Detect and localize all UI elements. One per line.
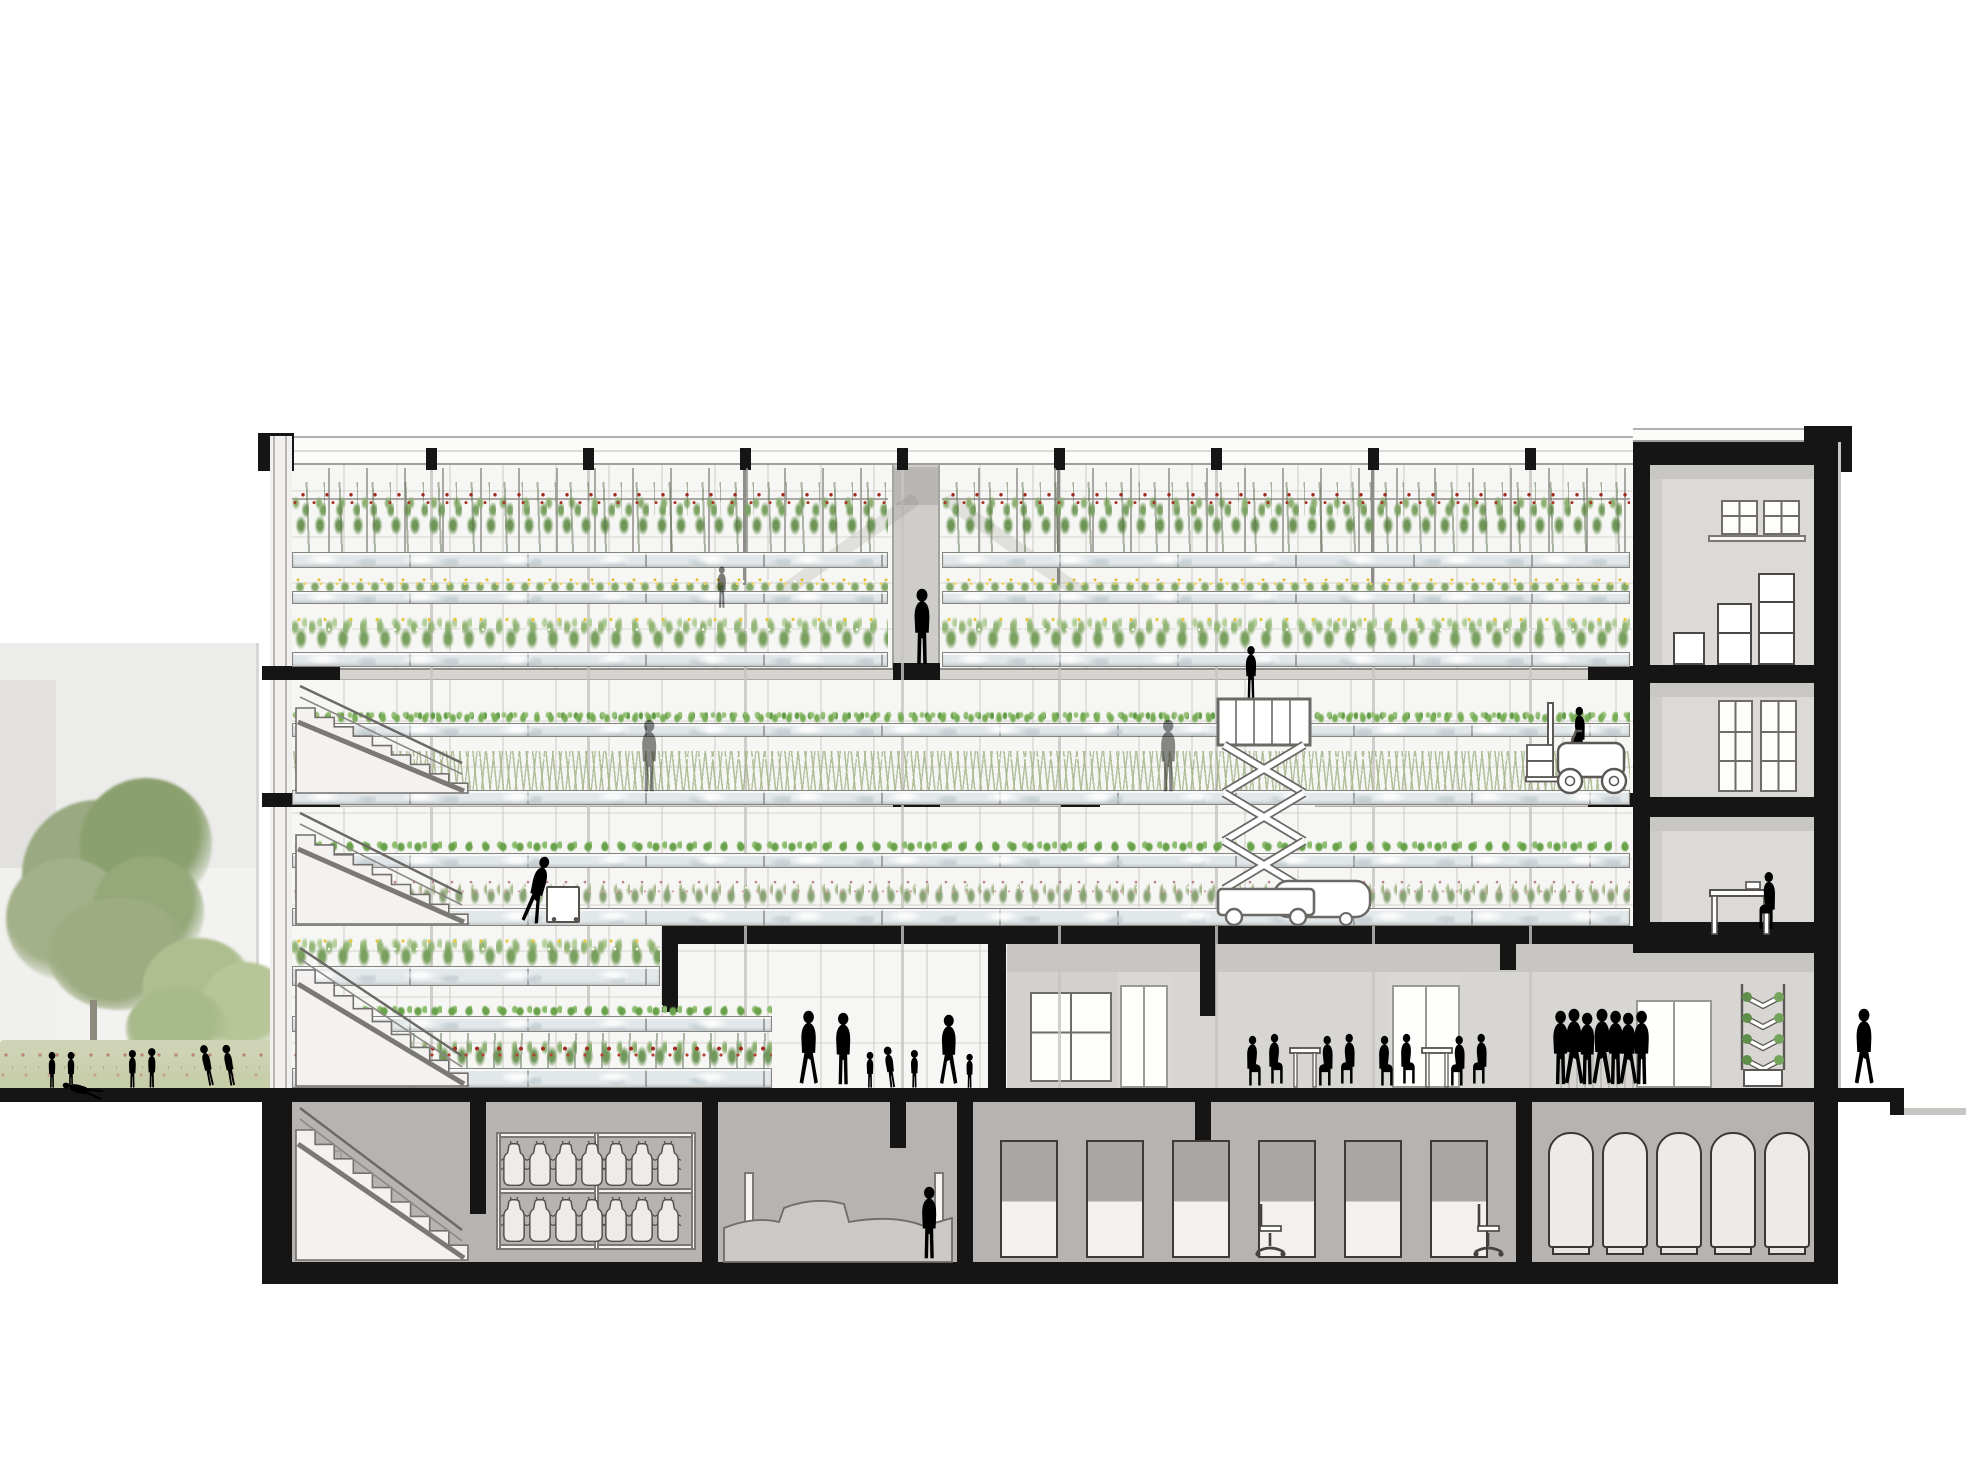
planter-box: [942, 552, 1630, 568]
tower-facade-line: [1838, 442, 1841, 1088]
cistern-foot: [1768, 1246, 1806, 1255]
roof-post: [740, 448, 751, 470]
wgrass-plant-row: [292, 751, 1630, 790]
storage-vessel: [656, 1196, 680, 1246]
storage-vessel: [580, 1140, 604, 1190]
storage-vessel: [580, 1196, 604, 1246]
ground-slab: [0, 1088, 1902, 1102]
office-chair: [1252, 1200, 1288, 1258]
person-silhouette-ps: [828, 1012, 858, 1088]
roof-post: [426, 448, 437, 470]
tower-cab-3: [1758, 573, 1795, 665]
locker-panel: [1000, 1140, 1058, 1258]
person-silhouette-ps: [1153, 719, 1183, 795]
planter-box: [292, 723, 1630, 737]
storage-vessel: [528, 1196, 552, 1246]
cistern-foot: [1606, 1246, 1644, 1255]
vertical-growing-rack: [1738, 982, 1788, 1088]
tower-win-b1: [1718, 700, 1753, 792]
tower-cab-2: [1717, 603, 1752, 665]
bsmt-div-4: [1516, 1102, 1532, 1262]
hall-window: [1030, 992, 1112, 1082]
person-silhouette-pc: [124, 1048, 141, 1090]
tomato-plant-row: [292, 482, 888, 552]
person-silhouette-pt: [1392, 1032, 1418, 1088]
person-silhouette-pw: [793, 1010, 824, 1088]
bsmt-wall-left: [262, 1088, 292, 1284]
tower-wall-right: [1814, 442, 1838, 1284]
lettuce-plant-row: [292, 837, 1630, 853]
architectural-section-drawing: Sectional drawing of an urban vertical-f…: [0, 0, 1966, 1475]
locker-panel: [1086, 1140, 1144, 1258]
roof-post: [1525, 448, 1536, 470]
ground-col-a: [662, 922, 678, 1012]
scissor-lift: [1178, 642, 1378, 932]
water-cistern: [1710, 1132, 1756, 1248]
person-silhouette-ps: [906, 588, 938, 668]
water-cistern: [1548, 1132, 1594, 1248]
office-chair: [1470, 1200, 1506, 1258]
tomato-plant-row: [942, 482, 1630, 552]
person-silhouette-ps: [914, 1186, 944, 1262]
staircase: [296, 944, 468, 1086]
person-silhouette-ps: [1626, 1010, 1657, 1088]
person-silhouette-pc: [862, 1050, 878, 1090]
staircase: [296, 682, 468, 793]
person-silhouette-pt: [1756, 870, 1785, 934]
micro-plant-row: [292, 707, 1630, 723]
cistern-foot: [1714, 1246, 1752, 1255]
storage-vessel: [554, 1140, 578, 1190]
water-cistern: [1764, 1132, 1810, 1248]
heather-plant-row: [292, 871, 1630, 908]
water-cistern: [1602, 1132, 1648, 1248]
person-silhouette-pt: [1470, 1032, 1496, 1088]
tower-slab-2: [1650, 797, 1814, 817]
roof-band: [258, 436, 1633, 465]
storage-vessel: [502, 1196, 526, 1246]
staircase: [296, 809, 468, 924]
planter-box: [292, 652, 888, 667]
person-silhouette-ps: [634, 719, 664, 795]
cistern-foot: [1660, 1246, 1698, 1255]
storage-vessel: [554, 1196, 578, 1246]
storage-vessel: [502, 1140, 526, 1190]
tower-sill: [1708, 535, 1806, 542]
storage-vessel: [604, 1196, 628, 1246]
tower-cab-1: [1673, 632, 1705, 665]
ytray-plant-row: [942, 575, 1630, 591]
planter-box: [942, 591, 1630, 604]
locker-panel: [1172, 1140, 1230, 1258]
person-silhouette-pc: [44, 1050, 60, 1090]
tankframe-v3: [691, 1132, 696, 1250]
person-silhouette-pw: [934, 1014, 964, 1088]
planter-box: [292, 908, 1630, 926]
roof-post: [583, 448, 594, 470]
stub-43-a: [262, 666, 340, 680]
tower-wall-left: [1633, 442, 1650, 922]
hall-stub-b: [1500, 942, 1516, 970]
locker-panel: [1344, 1140, 1402, 1258]
cistern-foot: [1552, 1246, 1590, 1255]
storage-vessel: [656, 1140, 680, 1190]
staircase: [296, 1104, 468, 1260]
storage-vessel: [630, 1140, 654, 1190]
tower-slab-1: [1650, 665, 1814, 683]
stub-43-c: [1588, 666, 1650, 680]
person-silhouette-pt: [1260, 1032, 1286, 1088]
ytray-plant-row: [292, 575, 888, 591]
street-step: [1890, 1088, 1904, 1115]
person-silhouette-pc: [143, 1046, 161, 1090]
person-silhouette-pt: [1338, 1032, 1364, 1088]
hall-stub-a: [1200, 942, 1216, 1016]
forklift: [1524, 697, 1638, 797]
person-silhouette-pc: [906, 1048, 923, 1090]
bsmt-stub-1: [890, 1102, 906, 1148]
bsmt-bottom-slab: [262, 1262, 1838, 1284]
storage-vessel: [630, 1196, 654, 1246]
tower-win-a1: [1721, 500, 1758, 535]
person-silhouette-pw: [1848, 1008, 1880, 1088]
bsmt-div-3: [957, 1102, 973, 1262]
ground-col-b: [988, 942, 1006, 1088]
planter-box: [292, 853, 1630, 868]
shrub-plant-row: [292, 607, 888, 652]
person-silhouette-pc: [962, 1052, 977, 1090]
bsmt-div-2: [702, 1102, 718, 1262]
tower-win-a2: [1763, 500, 1800, 535]
planter-box: [292, 790, 1630, 805]
planter-box: [292, 591, 888, 604]
person-silhouette-ps: [713, 566, 731, 610]
storage-vessel: [604, 1140, 628, 1190]
roof-post: [1211, 448, 1222, 470]
bsmt-div-1: [470, 1102, 486, 1214]
street-lower: [1904, 1108, 1966, 1115]
slab-4-3: [292, 668, 1633, 680]
roof-post: [1368, 448, 1379, 470]
roof-post: [897, 448, 908, 470]
left-wall: [270, 436, 292, 1088]
tankframe-v1: [496, 1132, 501, 1250]
water-cistern: [1656, 1132, 1702, 1248]
planter-box: [292, 552, 888, 568]
roof-post: [1054, 448, 1065, 470]
hall-door-1: [1120, 985, 1168, 1088]
tower-win-b2: [1760, 700, 1797, 792]
storage-vessel: [528, 1140, 552, 1190]
